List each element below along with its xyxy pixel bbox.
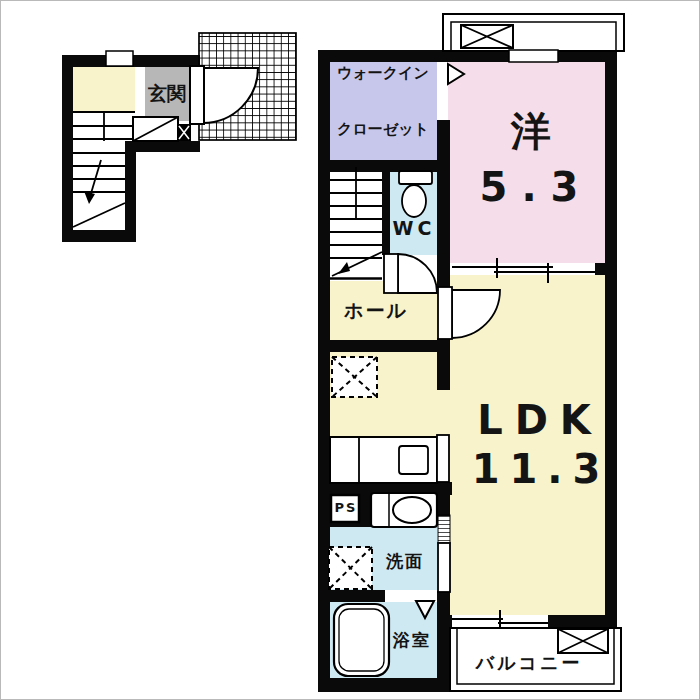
wall-hall-ldk-stub	[437, 338, 450, 390]
wall-washroom-ldk-upper	[437, 495, 450, 516]
walk-in-closet-label: ウォークイン クローゼット	[337, 26, 429, 176]
ldk-area: 11.3	[472, 444, 611, 494]
western-room-label: 洋	[511, 106, 551, 156]
porch-hatch	[199, 33, 296, 140]
western-room-area: 5.3	[480, 162, 593, 212]
hall-label: ホール	[344, 299, 408, 323]
ldk-label: LDK	[477, 395, 603, 445]
wall-1f-left	[62, 55, 73, 242]
balcony-label: バルコニー	[476, 652, 583, 675]
wall-wc-western-divider	[437, 120, 450, 288]
wall-2f-right	[605, 50, 617, 628]
wall-washroom-ldk-lower	[437, 591, 450, 680]
walk-in-closet-line2: クローゼット	[337, 120, 429, 139]
wall-1f-right-lower	[125, 141, 136, 242]
wc-label: WC	[393, 217, 436, 241]
floor-plan-canvas: 玄関 ウォークイン クローゼット 洋 5.3 WC ホール LDK 11.3 P…	[0, 0, 700, 700]
wall-balcony-left-seg	[438, 615, 452, 628]
room-ldk-kitchen-side	[330, 352, 450, 482]
wall-2f-left	[318, 50, 330, 692]
wall-washroom-bathroom	[330, 590, 385, 602]
wall-hall-bottom	[330, 340, 450, 352]
stairs-2f	[330, 167, 382, 279]
wall-western-bottom-right	[595, 263, 617, 275]
entrance-door-swing	[190, 66, 258, 124]
wall-balcony-right-seg	[548, 615, 617, 628]
room-wc	[390, 167, 437, 255]
wall-2f-bottom	[318, 678, 452, 692]
walk-in-closet-line1: ウォークイン	[337, 64, 429, 83]
upper-balcony-outline	[443, 14, 624, 51]
pipe-space-label: PS	[335, 500, 358, 516]
wall-1f-entrance-bottom	[125, 141, 200, 152]
wall-stairs-wc-divider	[382, 167, 390, 255]
bathroom-label: 浴室	[393, 630, 431, 651]
room-first-floor-landing	[73, 67, 135, 113]
entrance-column-box	[177, 124, 191, 141]
washroom-label: 洗面	[386, 551, 424, 572]
entrance-label: 玄関	[148, 82, 186, 106]
sliding-door-washroom	[438, 515, 450, 592]
wall-1f-top	[62, 55, 200, 67]
